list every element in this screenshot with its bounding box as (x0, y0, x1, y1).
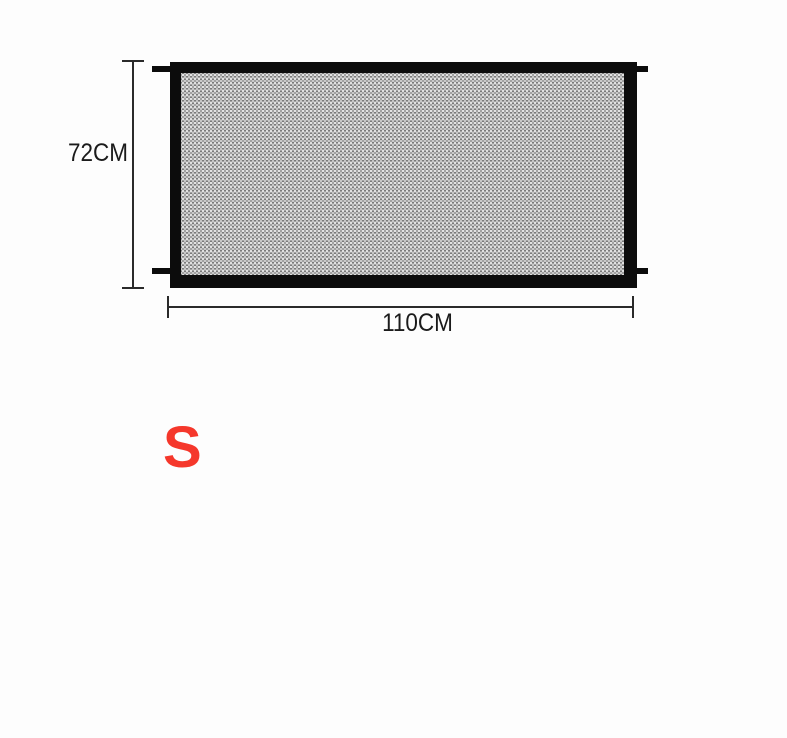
mount-tab-bottom-left (152, 268, 172, 274)
gate-mesh (181, 73, 624, 275)
dimension-tick-bottom (122, 287, 144, 289)
dimension-tick-left (167, 296, 169, 318)
product-dimension-diagram: 72CM 110CM S (0, 0, 787, 738)
height-dimension-line (132, 61, 134, 288)
height-dimension-label: 72CM (52, 139, 128, 168)
dimension-tick-top (122, 60, 144, 62)
mount-tab-top-right (632, 66, 648, 72)
mount-tab-bottom-right (632, 268, 648, 274)
width-dimension-label: 110CM (339, 309, 497, 338)
mount-tab-top-left (152, 66, 172, 72)
dimension-tick-right (632, 296, 634, 318)
gate-panel (170, 62, 637, 288)
size-label: S (163, 419, 202, 477)
width-dimension-line (168, 306, 633, 308)
